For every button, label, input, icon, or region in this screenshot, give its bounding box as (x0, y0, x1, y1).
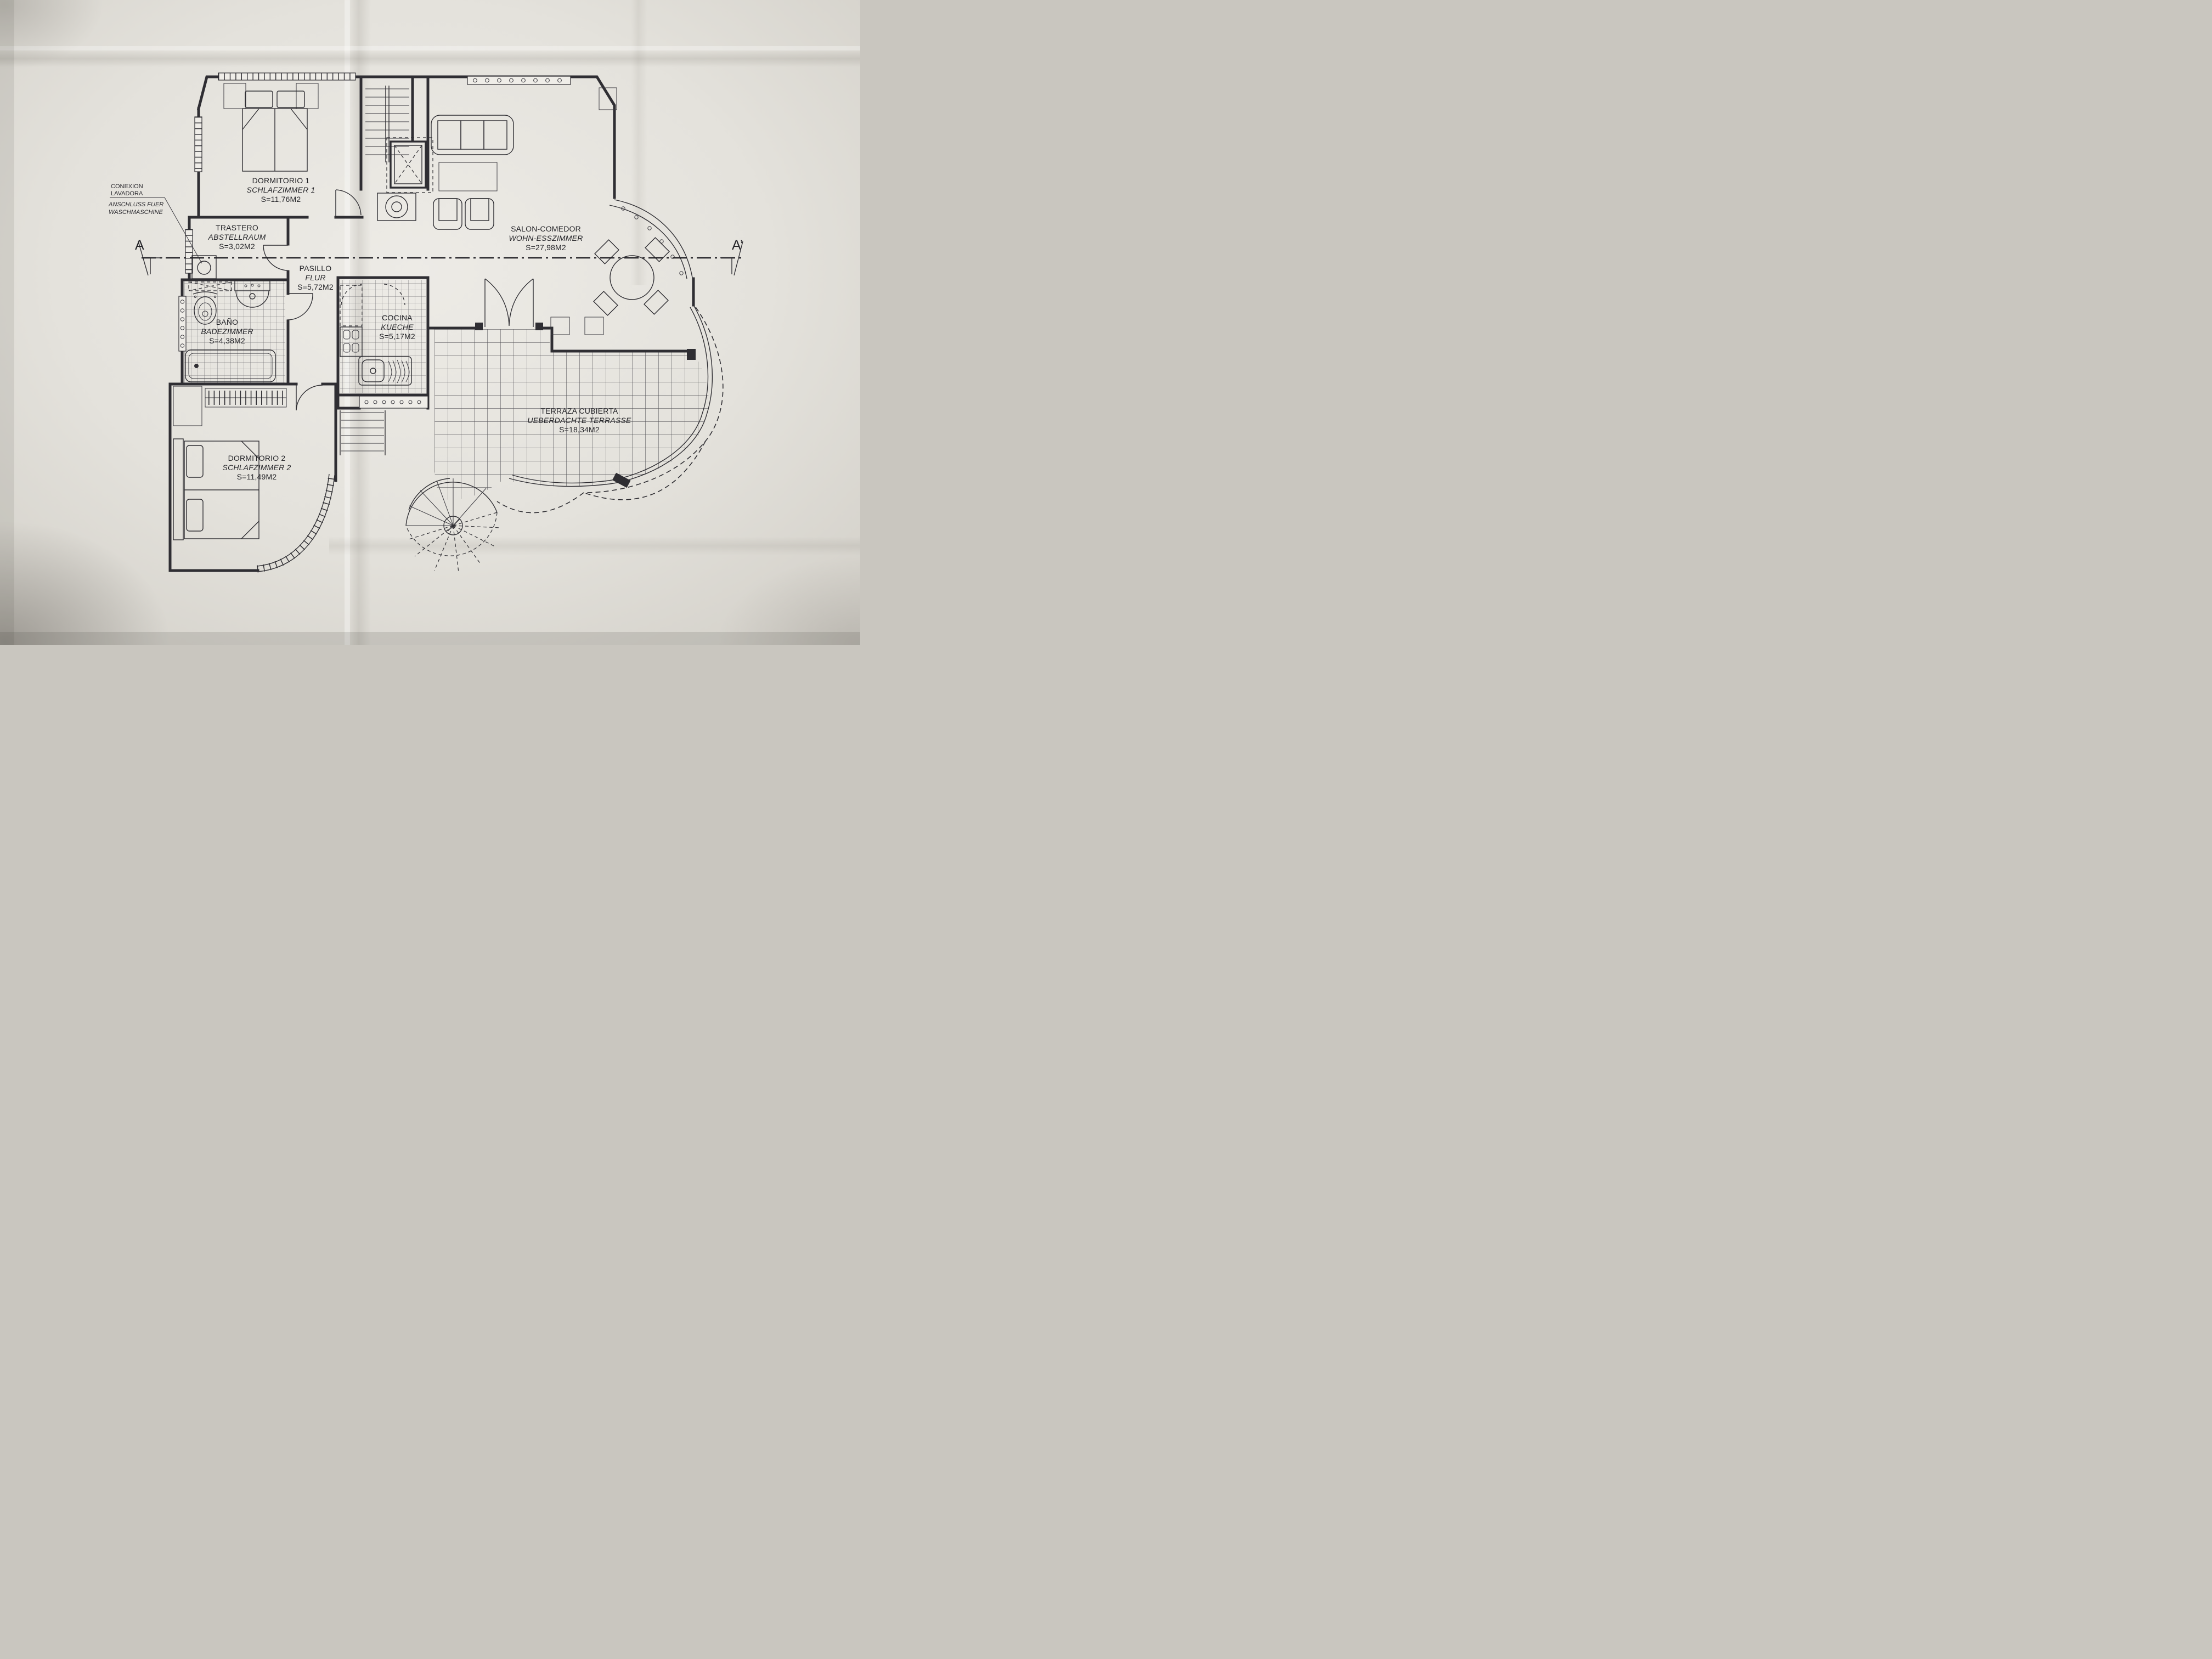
room-area: S=5,17M2 (379, 332, 415, 341)
room-name-alt: WOHN-ESSZIMMER (509, 234, 583, 242)
room-area: S=3,02M2 (219, 242, 255, 251)
floor-plan-drawing: DORMITORIO 1 SCHLAFZIMMER 1 S=11,76M2 TR… (0, 0, 860, 645)
section-marker-a: A (135, 238, 144, 253)
room-name-alt: SCHLAFZIMMER 2 (223, 463, 291, 472)
room-area: S=11,76M2 (261, 195, 301, 204)
room-name-alt: UEBERDACHTE TERRASSE (527, 416, 631, 425)
room-area: S=4,38M2 (209, 336, 245, 345)
annotation-de-2: WASCHMASCHINE (109, 209, 163, 216)
room-name: TERRAZA CUBIERTA (540, 407, 618, 415)
room-area: S=5,72M2 (297, 283, 334, 291)
room-name-alt: BADEZIMMER (201, 327, 253, 336)
room-name: SALON-COMEDOR (511, 224, 581, 233)
bedroom1-top-window (218, 73, 356, 80)
hall-lower-window-band (359, 396, 428, 408)
room-area: S=18,34M2 (559, 425, 600, 434)
room-label-cocina: COCINA KUECHE S=5,17M2 (379, 313, 415, 341)
section-marker-a-prime: A’ (732, 238, 743, 253)
bathroom-left-window (179, 296, 186, 351)
annotation-es-1: CONEXION (111, 183, 143, 190)
room-name: DORMITORIO 1 (252, 176, 310, 185)
bedroom1-left-window (195, 117, 202, 172)
room-name: COCINA (382, 313, 413, 322)
room-name-alt: FLUR (305, 273, 325, 282)
salon-top-window-band (467, 76, 571, 84)
floor-plan-photo: DORMITORIO 1 SCHLAFZIMMER 1 S=11,76M2 TR… (0, 0, 860, 645)
room-name-alt: ABSTELLRAUM (208, 233, 266, 241)
paper-background (0, 0, 860, 645)
room-name-alt: KUECHE (381, 323, 414, 331)
room-name: DORMITORIO 2 (228, 454, 286, 462)
annotation-de-1: ANSCHLUSS FUER (108, 201, 163, 208)
room-name: TRASTERO (216, 223, 258, 232)
room-area: S=27,98M2 (526, 243, 566, 252)
room-name-alt: SCHLAFZIMMER 1 (247, 185, 315, 194)
room-name: BAÑO (216, 318, 238, 326)
room-name: PASILLO (300, 264, 332, 273)
annotation-es-2: LAVADORA (111, 190, 143, 197)
room-area: S=11,49M2 (237, 472, 277, 481)
